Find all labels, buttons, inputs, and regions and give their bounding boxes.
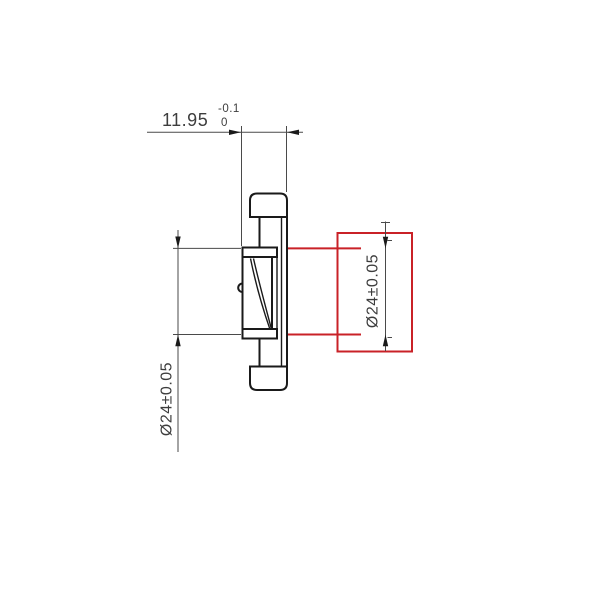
width-dim-tol-lower: 0 (221, 117, 228, 129)
part-cross-section (238, 194, 287, 391)
left-dim-label: Ø24±0.05 (159, 362, 176, 436)
drawing-canvas: 11.95 -0.1 0 Ø24±0.05 Ø24±0.05 (0, 0, 600, 600)
hub-body (243, 257, 273, 329)
top-flange-section (250, 194, 287, 218)
left-dim-arrow-bottom (175, 335, 180, 347)
width-dimension: 11.95 -0.1 0 (147, 103, 303, 246)
cone-profile-line-outer (254, 259, 272, 329)
highlighted-dimension-annotation: Ø24±0.05 (288, 222, 412, 352)
width-dim-value: 11.95 (162, 110, 208, 130)
section-view-drawing: 11.95 -0.1 0 Ø24±0.05 Ø24±0.05 (0, 0, 600, 600)
bottom-flange-section (250, 367, 287, 391)
width-arrow-left (229, 130, 241, 135)
hub-top-bar-section (243, 248, 278, 258)
hub-bottom-bar-section (243, 329, 278, 339)
cone-profile-line-inner (251, 259, 270, 329)
boxed-dim-arrow-top (383, 237, 388, 249)
boxed-dim-arrow-bottom (383, 335, 388, 347)
left-diameter-dimension: Ø24±0.05 (159, 230, 242, 452)
width-dim-tol-upper: -0.1 (218, 103, 240, 115)
left-dim-arrow-top (175, 237, 180, 249)
boxed-dim-label: Ø24±0.05 (365, 254, 382, 328)
width-arrow-right (287, 130, 299, 135)
